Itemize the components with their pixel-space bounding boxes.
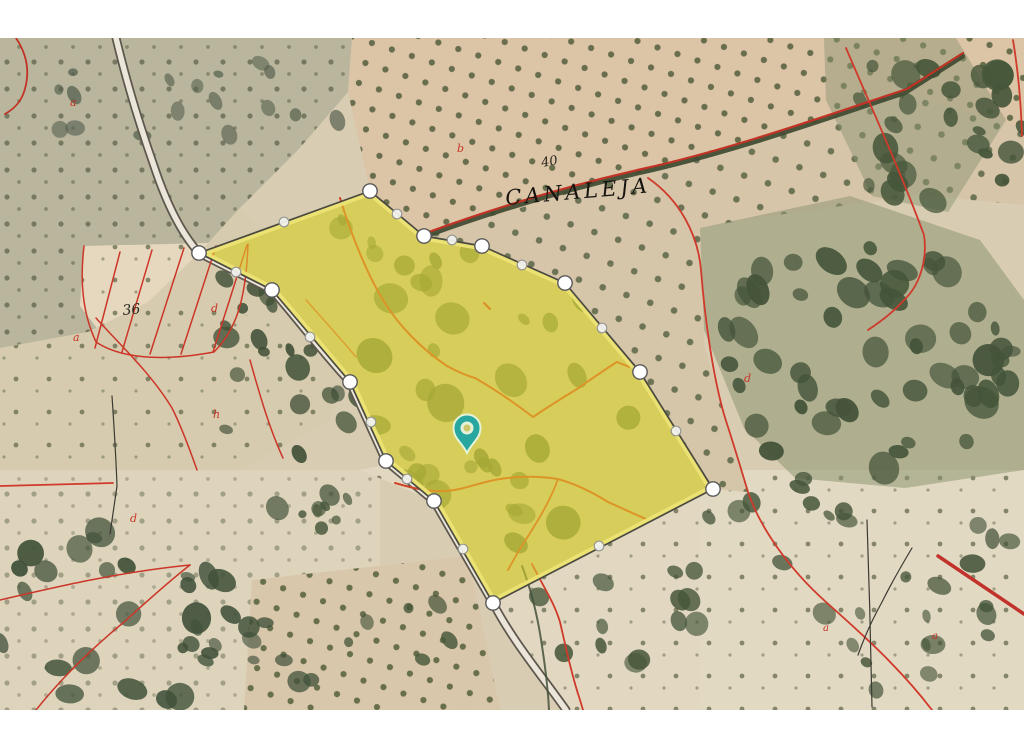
parcel-midpoint-handle[interactable] (458, 544, 468, 554)
parcel-vertex-handle[interactable] (475, 239, 489, 253)
screenshot-root: ab40CANALEJA36dahddaa (0, 0, 1024, 748)
map-label: d (130, 512, 137, 525)
map-canvas[interactable]: ab40CANALEJA36dahddaa (0, 38, 1024, 710)
parcel-vertex-handle[interactable] (427, 494, 441, 508)
map-label: 40 (539, 153, 559, 171)
parcel-midpoint-handle[interactable] (594, 541, 604, 551)
map-label: d (211, 302, 218, 315)
parcel-midpoint-handle[interactable] (392, 209, 402, 219)
map-label: a (932, 631, 938, 642)
parcel-midpoint-handle[interactable] (366, 417, 376, 427)
parcel-midpoint-handle[interactable] (279, 217, 289, 227)
parcel-midpoint-handle[interactable] (447, 235, 457, 245)
parcel-midpoint-handle[interactable] (402, 474, 412, 484)
parcel-vertex-handle[interactable] (265, 283, 279, 297)
map-label: a (73, 331, 80, 344)
parcel-vertex-handle[interactable] (633, 365, 647, 379)
parcel-midpoint-handle[interactable] (231, 267, 241, 277)
parcel-midpoint-handle[interactable] (597, 323, 607, 333)
map-label: b (457, 142, 464, 155)
map-label: 36 (122, 301, 141, 319)
parcel-vertex-handle[interactable] (706, 482, 720, 496)
parcel-vertex-handle[interactable] (343, 375, 357, 389)
parcel-midpoint-handle[interactable] (517, 260, 527, 270)
letterbox-top (0, 0, 1024, 38)
parcel-vertex-handle[interactable] (486, 596, 500, 610)
map-label: a (823, 623, 829, 634)
parcel-vertex-handle[interactable] (363, 184, 377, 198)
parcel-vertex-handle[interactable] (379, 454, 393, 468)
parcel-vertex-handle[interactable] (417, 229, 431, 243)
map-viewport[interactable]: ab40CANALEJA36dahddaa (0, 38, 1024, 710)
parcel-vertex-handle[interactable] (192, 246, 206, 260)
letterbox-bottom (0, 710, 1024, 748)
map-label: d (744, 372, 751, 385)
parcel-midpoint-handle[interactable] (305, 332, 315, 342)
pin-hole (462, 423, 472, 433)
parcel-vertex-handle[interactable] (558, 276, 572, 290)
map-label: h (213, 408, 220, 421)
parcel-midpoint-handle[interactable] (671, 426, 681, 436)
map-label: a (70, 96, 77, 109)
